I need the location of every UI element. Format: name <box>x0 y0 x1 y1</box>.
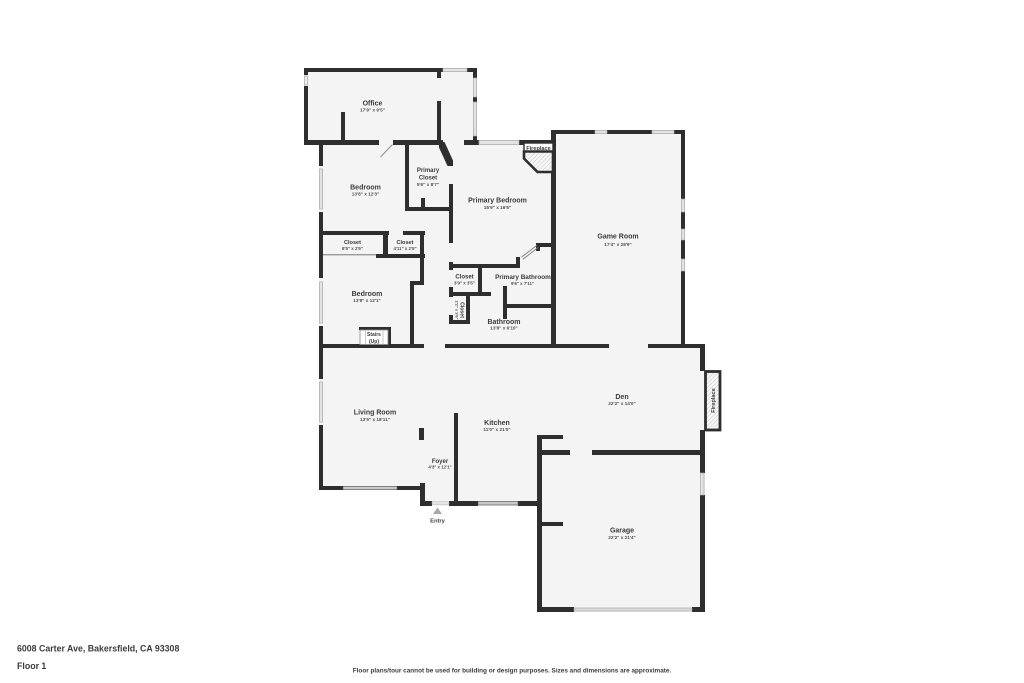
svg-text:13'8" x 6'10": 13'8" x 6'10" <box>490 326 518 331</box>
svg-text:13'8" x 12'1": 13'8" x 12'1" <box>353 298 381 303</box>
svg-text:9'6" x 7'11": 9'6" x 7'11" <box>511 281 534 286</box>
svg-text:Game Room: Game Room <box>597 234 638 241</box>
svg-text:17'4" x 28'9": 17'4" x 28'9" <box>604 242 632 247</box>
svg-text:22'2" x 14'0": 22'2" x 14'0" <box>608 401 636 406</box>
svg-text:Bedroom: Bedroom <box>350 185 381 192</box>
svg-text:Bedroom: Bedroom <box>352 291 383 298</box>
svg-text:Closet: Closet <box>455 274 473 280</box>
svg-text:13'8" x 12'3": 13'8" x 12'3" <box>352 192 380 197</box>
svg-text:Primary Bedroom: Primary Bedroom <box>468 198 527 205</box>
svg-text:(Up): (Up) <box>369 339 379 345</box>
svg-text:8'5" x 2'5": 8'5" x 2'5" <box>342 246 363 251</box>
svg-text:17'9" x 9'5": 17'9" x 9'5" <box>360 108 385 113</box>
svg-text:22'2" x 21'4": 22'2" x 21'4" <box>608 535 636 540</box>
svg-text:4'3" x 12'1": 4'3" x 12'1" <box>428 464 451 469</box>
svg-text:Fireplace: Fireplace <box>526 146 551 152</box>
svg-text:11'0" x 21'0": 11'0" x 21'0" <box>483 427 510 432</box>
svg-text:5'6" x 8'7": 5'6" x 8'7" <box>417 182 439 187</box>
svg-text:Entry: Entry <box>430 519 446 525</box>
svg-text:Floor plans/tour cannot be use: Floor plans/tour cannot be used for buil… <box>353 668 672 675</box>
svg-text:Stairs: Stairs <box>367 332 381 338</box>
svg-text:13'5" x 18'11": 13'5" x 18'11" <box>360 417 390 422</box>
svg-text:Living Room: Living Room <box>354 410 396 417</box>
svg-text:Garage: Garage <box>610 528 634 535</box>
svg-text:2'2" x 3'6": 2'2" x 3'6" <box>454 300 459 319</box>
svg-text:Den: Den <box>615 394 628 401</box>
svg-text:3'9" x 3'5": 3'9" x 3'5" <box>454 281 475 286</box>
svg-text:15'9" x 16'5": 15'9" x 16'5" <box>484 205 512 210</box>
svg-text:Primary: Primary <box>417 168 440 174</box>
svg-text:Fireplace: Fireplace <box>711 388 717 413</box>
svg-text:Closet: Closet <box>419 176 437 182</box>
svg-text:6008 Carter Ave, Bakersfield,: 6008 Carter Ave, Bakersfield, CA 93308 <box>17 644 179 654</box>
svg-text:Office: Office <box>363 101 383 108</box>
svg-text:Floor 1: Floor 1 <box>17 661 46 671</box>
svg-text:4'11" x 2'5": 4'11" x 2'5" <box>393 246 416 251</box>
svg-text:Kitchen: Kitchen <box>484 420 510 427</box>
